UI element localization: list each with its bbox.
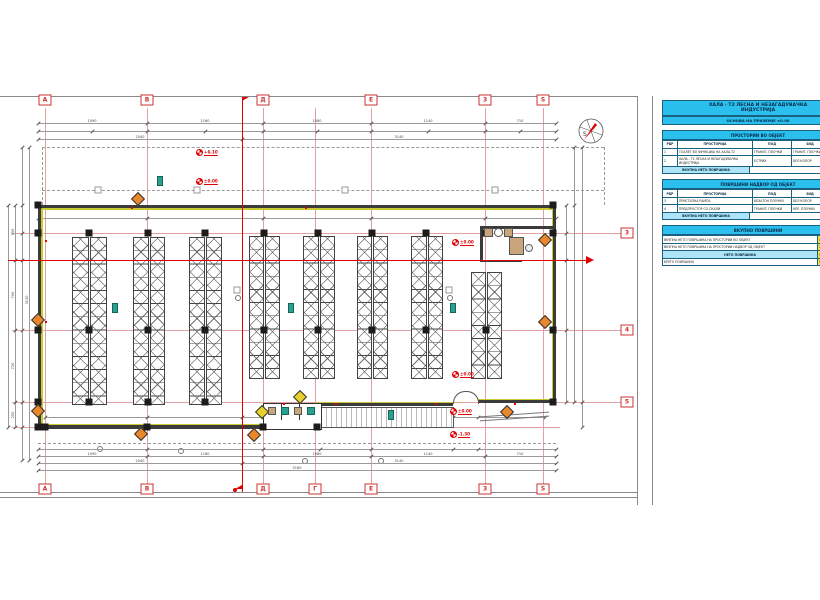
rooms-table: ПРОСТОРИИ ВО ОБЈЕКТРБРПРОСТОРИЈАПОДЅИДм²… (662, 130, 820, 174)
toilet-fixture (307, 407, 315, 415)
column (368, 327, 375, 334)
dimension-tick (554, 468, 558, 472)
section-line-vertical (242, 97, 243, 492)
dimension-tick (554, 137, 558, 141)
floor-plan-sheet: ХАЛА - Т2 ЛЕСНА И НЕЗАГАДУВАЧКА ИНДУСТРИ… (0, 0, 820, 600)
sensor-dot (335, 403, 337, 405)
fire-equipment-symbol (288, 303, 294, 313)
drain-circle (447, 295, 453, 301)
level-marker: ±0.00 (452, 239, 474, 246)
column (482, 327, 489, 334)
sensor-dot (514, 403, 516, 405)
table-row: ВКУПНА НЕТО ПОВРШИНА НА ПРОСТОРИИ ВО ОБЈ… (663, 235, 820, 243)
column (145, 327, 152, 334)
column (314, 424, 321, 431)
totals-table: ВКУПНО ПОВРШИНИВКУПНА НЕТО ПОВРШИНА НА П… (662, 225, 820, 266)
table-cell: ГРАНИТ. ПЛОЧКИ (752, 205, 791, 212)
fire-equipment-symbol (450, 303, 456, 313)
table-cell: БЕЛ КОЛОР (791, 156, 820, 166)
dimension-line (38, 218, 556, 219)
grid-label-bottom-Д: Д (257, 484, 270, 495)
wall-insulation (552, 208, 554, 403)
dimension-text: 2040 (136, 135, 145, 139)
dimension-tick (554, 129, 558, 133)
drain-circle (235, 295, 241, 301)
column (35, 424, 42, 431)
section-dot-bottom (233, 488, 237, 492)
title-block: ХАЛА - Т2 ЛЕСНА И НЕЗАГАДУВАЧКА ИНДУСТРИ… (662, 100, 820, 271)
grid-label-top-Ѕ: Ѕ (537, 95, 550, 106)
grid-label-top-А: А (39, 95, 52, 106)
table-cell: БРУТО ПОВРШИНА (663, 259, 817, 266)
column (315, 230, 322, 237)
dimension-text: 3130 (25, 296, 29, 305)
table-cell: ГРАНИТ. ПЛОЧКИ (791, 149, 820, 156)
column (201, 230, 208, 237)
table-cell: ВКУПНА НЕТО ПОВРШИНА НА ПРОСТОРИИ ВО ОБЈ… (663, 236, 817, 243)
dimension-tick (27, 458, 31, 462)
sensor-dot (45, 321, 47, 323)
sensor-dot (283, 403, 285, 405)
storage-rack-row (90, 237, 107, 405)
canopy-outline-right (604, 147, 605, 205)
table-cell: ПРОСТОРИЈА (677, 190, 752, 197)
table-cell: РБР (663, 141, 677, 148)
column (144, 424, 151, 431)
dimension-tick (554, 121, 558, 125)
grid-label-bottom-В: В (141, 484, 154, 495)
dimension-tick (554, 454, 558, 458)
dimension-tick (554, 461, 558, 465)
column (260, 327, 267, 334)
column (201, 399, 208, 406)
table-row: 3ПРИСТАПНА РАМПАБЕХАТОН ПЛОЧКИБЕЛ КОЛОР1… (663, 197, 820, 205)
section-line-horizontal (8, 260, 592, 261)
column (315, 327, 322, 334)
storage-rack-row (471, 272, 486, 379)
column (423, 327, 430, 334)
storage-rack-row (72, 237, 89, 405)
storage-rack-row (411, 236, 427, 379)
table-cell: БЕЛ КОЛОР (791, 198, 820, 205)
storage-rack-row (320, 236, 336, 379)
grid-label-top-Е: Е (365, 95, 378, 106)
column (550, 202, 557, 209)
table-header: ПОВРШИНИ НАДВОР ОД ОБЈЕКТ (663, 180, 820, 189)
dimension-tick (20, 458, 24, 462)
dimension-tick (580, 425, 584, 429)
outside-areas-table: ПОВРШИНИ НАДВОР ОД ОБЈЕКТРБРПРОСТОРИЈАПО… (662, 179, 820, 220)
grid-label-bottom-Г: Г (309, 484, 322, 495)
storage-rack-row (303, 236, 319, 379)
drawing-subtitle: ОСНОВА НА ПРИЗЕМЈЕ ±0.00 (663, 116, 820, 124)
dimension-text: 250 (11, 412, 15, 419)
canopy-outline-left (42, 147, 43, 205)
table-cell: КЕР. ПЛОЧКИ (791, 205, 820, 212)
grid-label-bottom-З: З (479, 484, 492, 495)
level-marker: ±0.00 (450, 408, 472, 415)
column (35, 327, 42, 334)
sensor-dot (45, 240, 47, 242)
grid-line-Ѕ (543, 108, 544, 486)
table-cell: ВКУПНА НЕТО ПОВРШИНА (663, 167, 749, 174)
dimension-text: 5180 (293, 466, 302, 470)
grid-label-right-4: 4 (621, 325, 634, 336)
table-row: БРУТО ПОВРШИНА516,70 (663, 258, 820, 266)
dimension-text: 710 (517, 452, 524, 456)
table-cell: 4 (663, 205, 677, 212)
fire-equipment-symbol (112, 303, 118, 313)
compass-label: S (583, 131, 587, 138)
level-marker: -1.30 (450, 431, 470, 438)
storage-rack-row (189, 237, 205, 405)
section-flag-top (242, 97, 249, 101)
office-chair (525, 244, 533, 252)
column (85, 399, 92, 406)
dimension-text: 720 (11, 363, 15, 370)
column (85, 230, 92, 237)
wall-segment (478, 400, 556, 403)
table-row: ВКУПНА НЕТО ПОВРШИНА481,55 (663, 166, 820, 174)
column (85, 327, 92, 334)
dimension-line (8, 205, 9, 427)
table-cell (749, 167, 820, 174)
level-marker: +6.10 (196, 149, 218, 156)
office-sink (494, 228, 503, 237)
grid-label-bottom-Е: Е (365, 484, 378, 495)
column (550, 230, 557, 237)
storage-rack-row (428, 236, 444, 379)
dimension-line (29, 147, 30, 460)
table-row: 4ПРЕДПРОСТОР СО СКАЛИГРАНИТ. ПЛОЧКИКЕР. … (663, 204, 820, 212)
grid-label-right-5: 5 (621, 397, 634, 408)
column (260, 230, 267, 237)
table-cell: ПОД (752, 190, 791, 197)
dimension-line (38, 463, 556, 464)
dimension-text: 1090 (88, 119, 97, 123)
table-row: ВКУПНА НЕТО ПОВРШИНА НА ПРОСТОРИИ НАДВОР… (663, 243, 820, 251)
title-block-header: ХАЛА - Т2 ЛЕСНА И НЕЗАГАДУВАЧКА ИНДУСТРИ… (662, 100, 820, 125)
dimension-text: 550 (11, 229, 15, 236)
dimension-line (22, 147, 23, 460)
office-fixture (484, 228, 493, 237)
table-row: РБРПРОСТОРИЈАПОДЅИДм² (663, 189, 820, 197)
column (145, 399, 152, 406)
dimension-line (15, 205, 16, 427)
roof-post (446, 287, 453, 294)
column (42, 424, 49, 431)
grid-label-right-3: 3 (621, 228, 634, 239)
table-cell: РБР (663, 190, 677, 197)
table-row: 1ТОАЛЕТ ВО ФУНКЦИЈА НА ХАЛА-Т2ГРАНИТ. ПЛ… (663, 148, 820, 156)
canopy-outline-inner (42, 190, 604, 191)
north-arrow-compass: S (576, 116, 606, 146)
table-cell: ВКУПНА НЕТО ПОВРШИНА (663, 213, 749, 220)
grid-label-bottom-А: А (39, 484, 52, 495)
table-cell: ХАЛА - Т2 ЛЕСНА И НЕЗАГАДУВАЧКА ИНДУСТРИ… (677, 156, 752, 166)
office-desk (509, 237, 524, 255)
entrance-door-leaf-left (453, 391, 466, 404)
grid-label-top-В: В (141, 95, 154, 106)
table-row: ВКУПНА НЕТО ПОВРШИНА21,00 (663, 212, 820, 220)
dimension-text: 2040 (136, 459, 145, 463)
column (550, 399, 557, 406)
toilet-fixture (281, 407, 289, 415)
hydrant-diamond-marker (31, 404, 45, 418)
toilet-fixture (294, 407, 302, 415)
storage-rack-row (373, 236, 388, 379)
storage-rack-row (133, 237, 149, 405)
table-cell: ПРЕДПРОСТОР СО СКАЛИ (677, 205, 752, 212)
grid-label-top-Д: Д (257, 95, 270, 106)
grid-label-top-З: З (479, 95, 492, 106)
roof-post (234, 287, 241, 294)
column (145, 230, 152, 237)
table-cell: ЅИД (791, 190, 820, 197)
column (423, 230, 430, 237)
table-cell: ПОД (752, 141, 791, 148)
dimension-text: 700 (11, 292, 15, 299)
table-cell: 1 (663, 149, 677, 156)
dimension-text: 3140 (395, 135, 404, 139)
table-row: 2ХАЛА - Т2 ЛЕСНА И НЕЗАГАДУВАЧКА ИНДУСТР… (663, 155, 820, 166)
canopy-outline-top (42, 147, 604, 148)
dimension-line (38, 123, 556, 124)
storage-rack-row (206, 237, 222, 405)
level-marker: ±0.00 (196, 178, 218, 185)
dimension-text: 1080 (313, 452, 322, 456)
table-cell: ПРОСТОРИЈА (677, 141, 752, 148)
table-cell: 3 (663, 198, 677, 205)
storage-rack-row (150, 237, 166, 405)
entrance-door-leaf-right (466, 391, 479, 404)
table-row: НЕТО ПОВРШИНА502,55 (663, 250, 820, 258)
dimension-line (574, 147, 575, 402)
canopy-post (194, 187, 201, 194)
fire-equipment-symbol (157, 176, 163, 186)
dimension-tick (554, 447, 558, 451)
sensor-dot (131, 207, 133, 209)
fire-equipment-symbol (388, 410, 394, 420)
dimension-text: 1090 (88, 452, 97, 456)
section-arrow-right (586, 256, 594, 264)
storage-rack-row (249, 236, 264, 379)
grid-label-bottom-Ѕ: Ѕ (537, 484, 550, 495)
dimension-text: 1080 (313, 119, 322, 123)
table-cell (749, 213, 820, 220)
wall-insulation (41, 208, 553, 210)
canopy-post (95, 187, 102, 194)
dimension-line (582, 147, 583, 427)
column (260, 424, 267, 431)
sensor-dot (305, 207, 307, 209)
table-cell: ТОАЛЕТ ВО ФУНКЦИЈА НА ХАЛА-Т2 (677, 149, 752, 156)
table-header: ПРОСТОРИИ ВО ОБЈЕКТ (663, 131, 820, 140)
canopy-post (492, 187, 499, 194)
toilet-fixture (268, 407, 276, 415)
wall-segment (317, 403, 453, 406)
dimension-text: 1140 (424, 119, 433, 123)
table-cell: НЕТО ПОВРШИНА (663, 251, 817, 258)
dimension-text: 3140 (395, 459, 404, 463)
storage-rack-row (357, 236, 372, 379)
office-fixture (504, 228, 513, 237)
dimension-text: 1160 (201, 452, 210, 456)
table-cell: ВКУПНА НЕТО ПОВРШИНА НА ПРОСТОРИИ НАДВОР… (663, 244, 817, 251)
level-marker: ±0.00 (452, 371, 474, 378)
wall-insulation (317, 402, 453, 404)
table-row: РБРПРОСТОРИЈАПОДЅИДм² (663, 140, 820, 148)
dimension-line (38, 139, 556, 140)
table-cell: ГРАНИТ. ПЛОЧКИ (752, 149, 791, 156)
dimension-text: 1160 (201, 119, 210, 123)
dimension-line (38, 456, 556, 457)
column (35, 230, 42, 237)
table-cell: ЕСТРИХ (752, 156, 791, 166)
table-cell: ЅИД (791, 141, 820, 148)
table-cell: БЕХАТОН ПЛОЧКИ (752, 198, 791, 205)
sensor-dot (435, 403, 437, 405)
column (201, 327, 208, 334)
table-cell: ПРИСТАПНА РАМПА (677, 198, 752, 205)
table-cell: 2 (663, 156, 677, 166)
storage-rack-row (265, 236, 280, 379)
dimension-text: 1140 (424, 452, 433, 456)
outside-dashed-line (38, 443, 556, 444)
column (35, 202, 42, 209)
dimension-text: 710 (517, 119, 524, 123)
drawing-area: АВДЕЗЅАВДГЕЗЅ345+6.10±0.00±0.00±0.00±0.0… (0, 0, 820, 600)
dimension-line (38, 131, 556, 132)
wall-insulation (478, 399, 556, 401)
table-header: ВКУПНО ПОВРШИНИ (663, 226, 820, 235)
canopy-post (342, 187, 349, 194)
storage-rack-row (487, 272, 502, 379)
dimension-line (38, 470, 556, 471)
drawing-title-line2: ИНДУСТРИЈА (664, 108, 820, 114)
column (368, 230, 375, 237)
dimension-tick (6, 425, 10, 429)
hydrant-diamond-marker (131, 192, 145, 206)
column (550, 327, 557, 334)
hydrant-diamond-marker (31, 313, 45, 327)
